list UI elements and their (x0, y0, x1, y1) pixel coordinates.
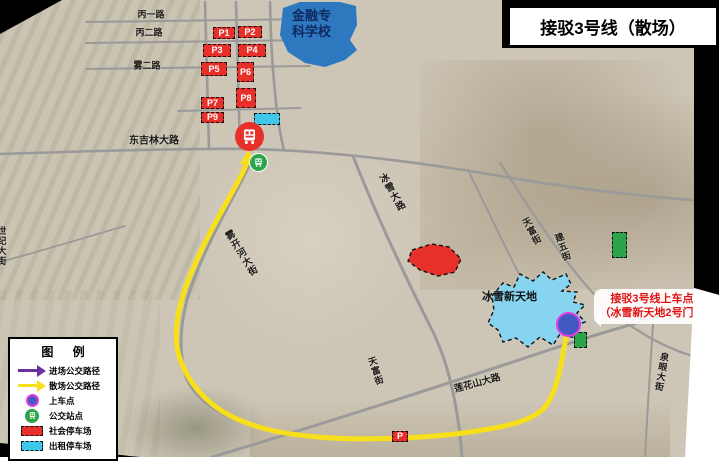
legend-item-3: 公交站点 (15, 408, 111, 423)
boarding-point-icon (26, 394, 39, 407)
legend-symbol (15, 409, 49, 423)
social-parking-icon (21, 426, 43, 436)
bus-glyph-icon (28, 411, 37, 420)
legend-item-4: 社会停车场 (15, 423, 111, 438)
legend-item-2: 上车点 (15, 393, 111, 408)
legend-item-1: 散场公交路径 (15, 378, 111, 393)
legend-symbol (15, 384, 49, 388)
exit-route-arrow-icon (18, 384, 38, 388)
legend-item-label: 出租停车场 (49, 440, 92, 452)
legend: 图 例 进场公交路径散场公交路径上车点公交站点社会停车场出租停车场 (8, 337, 118, 461)
legend-rows: 进场公交路径散场公交路径上车点公交站点社会停车场出租停车场 (15, 363, 111, 453)
legend-item-label: 社会停车场 (49, 425, 92, 437)
legend-item-0: 进场公交路径 (15, 363, 111, 378)
legend-symbol (15, 394, 49, 407)
taxi-parking-icon (21, 441, 43, 451)
legend-title: 图 例 (15, 343, 111, 360)
enter-route-arrow-icon (18, 369, 38, 373)
legend-item-label: 散场公交路径 (49, 380, 100, 392)
legend-item-5: 出租停车场 (15, 438, 111, 453)
page-title: 接驳3号线（散场） (508, 6, 718, 47)
satellite-map: P1P2P3P4P5P6P7P8P9P 丙一路丙二路雾二路东吉林大路雾开河大街冰… (0, 0, 719, 457)
legend-symbol (15, 441, 49, 451)
bus-station-icon (25, 409, 39, 423)
legend-item-label: 上车点 (49, 395, 75, 407)
legend-item-label: 公交站点 (49, 410, 83, 422)
legend-item-label: 进场公交路径 (49, 365, 100, 377)
legend-symbol (15, 369, 49, 373)
legend-symbol (15, 426, 49, 436)
